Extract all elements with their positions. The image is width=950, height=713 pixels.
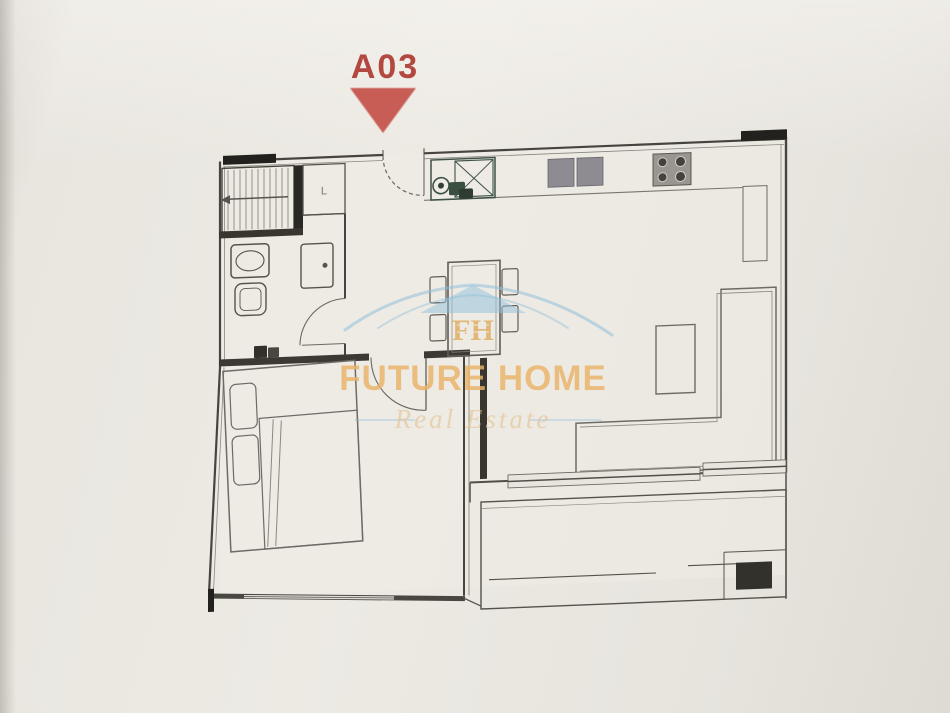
unit-label: A03 xyxy=(351,48,419,86)
house-logo-icon: FH xyxy=(345,285,612,347)
brand-tagline: Real Estate xyxy=(394,404,552,434)
stove xyxy=(653,153,691,187)
fridge xyxy=(548,158,574,187)
photo-edge-shadow xyxy=(0,0,16,713)
utility-box-icon xyxy=(254,346,267,359)
agency-watermark: FH FUTURE HOME Real Estate xyxy=(330,268,620,448)
brand-name: FUTURE HOME xyxy=(339,359,607,398)
utility-box-icon xyxy=(268,347,279,357)
monogram: FH xyxy=(452,314,494,347)
ac-unit xyxy=(736,561,772,589)
floor-plan-photo: { "page": { "paper_color": "#e9e6e0" }, … xyxy=(0,0,950,713)
closet-label: L xyxy=(321,185,327,197)
location-marker-icon xyxy=(350,88,416,133)
fridge xyxy=(577,157,603,186)
